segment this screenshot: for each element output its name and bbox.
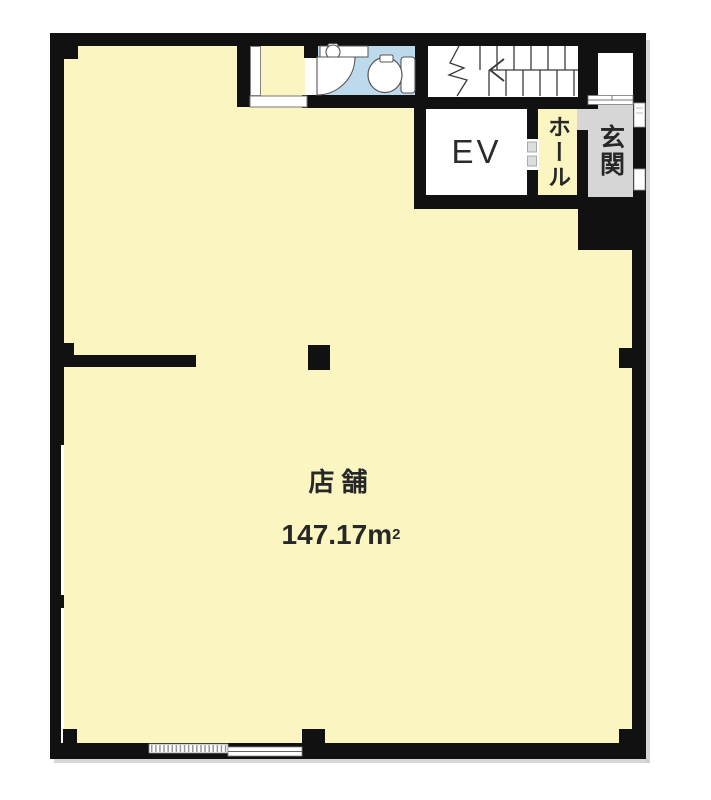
partition-wall: [63, 355, 196, 367]
wall-porch-left: [578, 46, 598, 97]
entrance-porch: [598, 53, 633, 95]
entrance-label-text: 玄関: [593, 124, 629, 178]
elevator-label: EV: [426, 109, 527, 195]
wall-right-lower: [632, 246, 646, 743]
plan-shadow-bottom: [54, 759, 649, 763]
wall-toilet-bottom: [302, 95, 428, 108]
wall-bottom: [50, 743, 646, 759]
wall-top: [50, 33, 646, 46]
wall-right-upper: [633, 33, 646, 197]
area-unit: m: [367, 519, 392, 551]
hall-label: ホール: [538, 107, 577, 197]
pillar-right-mid: [619, 348, 632, 368]
stairs-area: [427, 46, 578, 97]
wall-elevator-bottom: [414, 195, 580, 209]
hall-entrance-opening: [577, 109, 588, 130]
pillar-bottom-center: [302, 729, 325, 744]
wall-toilet-left-stub: [304, 46, 318, 58]
wall-hall-right: [577, 130, 588, 197]
wall-left-upper: [50, 33, 64, 445]
floor-plan: EV ホール 玄関 店舗 147.17m2: [0, 0, 711, 800]
pillar-left-lower: [50, 595, 64, 608]
shop-label: 店舗: [238, 464, 438, 496]
hall-label-text: ホール: [541, 115, 575, 190]
wall-elevator-right: [527, 109, 538, 195]
shop-area-label: 147.17m2: [216, 518, 466, 552]
entrance-label: 玄関: [588, 105, 633, 197]
area-value: 147.17: [282, 519, 368, 551]
block-below-entrance: [578, 197, 646, 250]
shop-label-text: 店舗: [301, 462, 374, 499]
pillar-center: [308, 345, 330, 370]
wall-elevator-left: [414, 97, 426, 207]
pillar-top-left: [64, 46, 78, 59]
elevator-label-text: EV: [451, 133, 501, 171]
pillar-bottom-right: [619, 729, 633, 744]
pillar-bottom-left: [63, 729, 77, 744]
wall-alcove-left: [237, 46, 250, 107]
plan-shadow-right: [646, 40, 650, 763]
toilet-room-floor: [315, 46, 415, 96]
